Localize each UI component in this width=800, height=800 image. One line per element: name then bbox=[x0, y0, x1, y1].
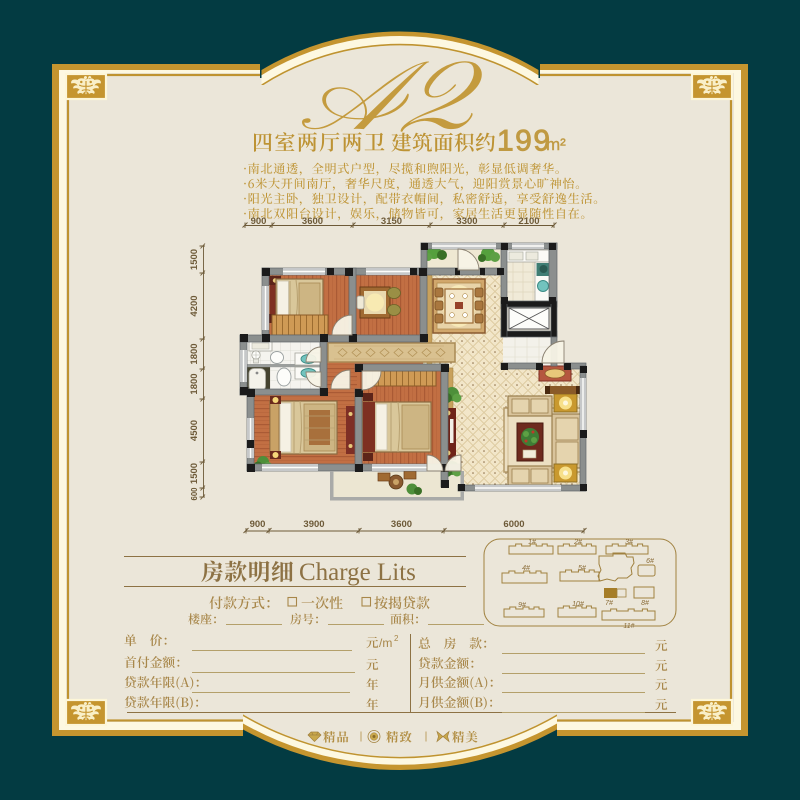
svg-text:900: 900 bbox=[250, 519, 266, 530]
svg-text:2#: 2# bbox=[573, 539, 582, 546]
svg-text:1500: 1500 bbox=[189, 463, 200, 484]
svg-text:2100: 2100 bbox=[518, 216, 539, 227]
svg-text:4500: 4500 bbox=[189, 420, 200, 441]
svg-text:1800: 1800 bbox=[189, 343, 200, 364]
svg-text:3600: 3600 bbox=[391, 519, 412, 530]
svg-text:4#: 4# bbox=[522, 565, 530, 572]
svg-text:3900: 3900 bbox=[303, 519, 324, 530]
svg-text:3600: 3600 bbox=[302, 216, 323, 227]
svg-text:10#: 10# bbox=[572, 601, 584, 608]
svg-text:600: 600 bbox=[190, 487, 199, 501]
svg-text:1500: 1500 bbox=[189, 249, 200, 270]
svg-text:2: 2 bbox=[394, 634, 399, 643]
svg-text:11#: 11# bbox=[623, 623, 634, 630]
svg-text:m²: m² bbox=[546, 135, 566, 154]
svg-text:3150: 3150 bbox=[381, 216, 402, 227]
svg-text:/m: /m bbox=[379, 636, 392, 650]
svg-text:1800: 1800 bbox=[189, 373, 200, 394]
svg-text:6000: 6000 bbox=[503, 519, 524, 530]
svg-text:9#: 9# bbox=[518, 602, 526, 609]
svg-text:199: 199 bbox=[497, 125, 552, 158]
svg-text:Charge Lits: Charge Lits bbox=[299, 559, 416, 586]
svg-text:7#: 7# bbox=[605, 600, 613, 607]
svg-text:8#: 8# bbox=[641, 600, 649, 607]
svg-text:3300: 3300 bbox=[456, 216, 477, 227]
svg-text:3#: 3# bbox=[625, 539, 633, 546]
svg-text:1#: 1# bbox=[528, 539, 536, 546]
svg-text:4200: 4200 bbox=[189, 295, 200, 316]
svg-text:900: 900 bbox=[251, 216, 267, 227]
svg-text:5#: 5# bbox=[578, 565, 586, 572]
svg-text:6#: 6# bbox=[646, 558, 654, 565]
